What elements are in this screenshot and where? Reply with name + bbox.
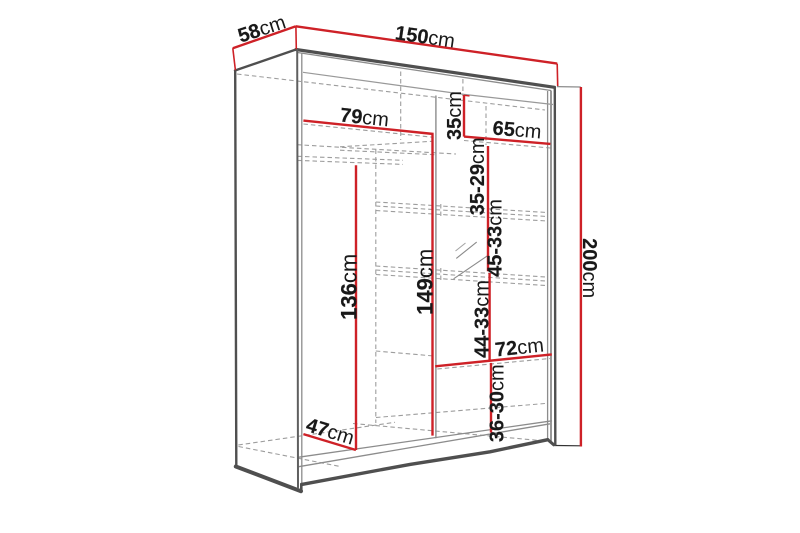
svg-text:65cm: 65cm [492,117,543,143]
svg-text:200cm: 200cm [578,238,600,298]
svg-text:35cm: 35cm [444,91,466,140]
svg-text:44-33cm: 44-33cm [472,280,494,358]
svg-text:36-30cm: 36-30cm [487,364,509,442]
svg-text:45-33cm: 45-33cm [485,199,507,277]
svg-text:136cm: 136cm [336,254,361,320]
svg-text:149cm: 149cm [412,249,437,315]
